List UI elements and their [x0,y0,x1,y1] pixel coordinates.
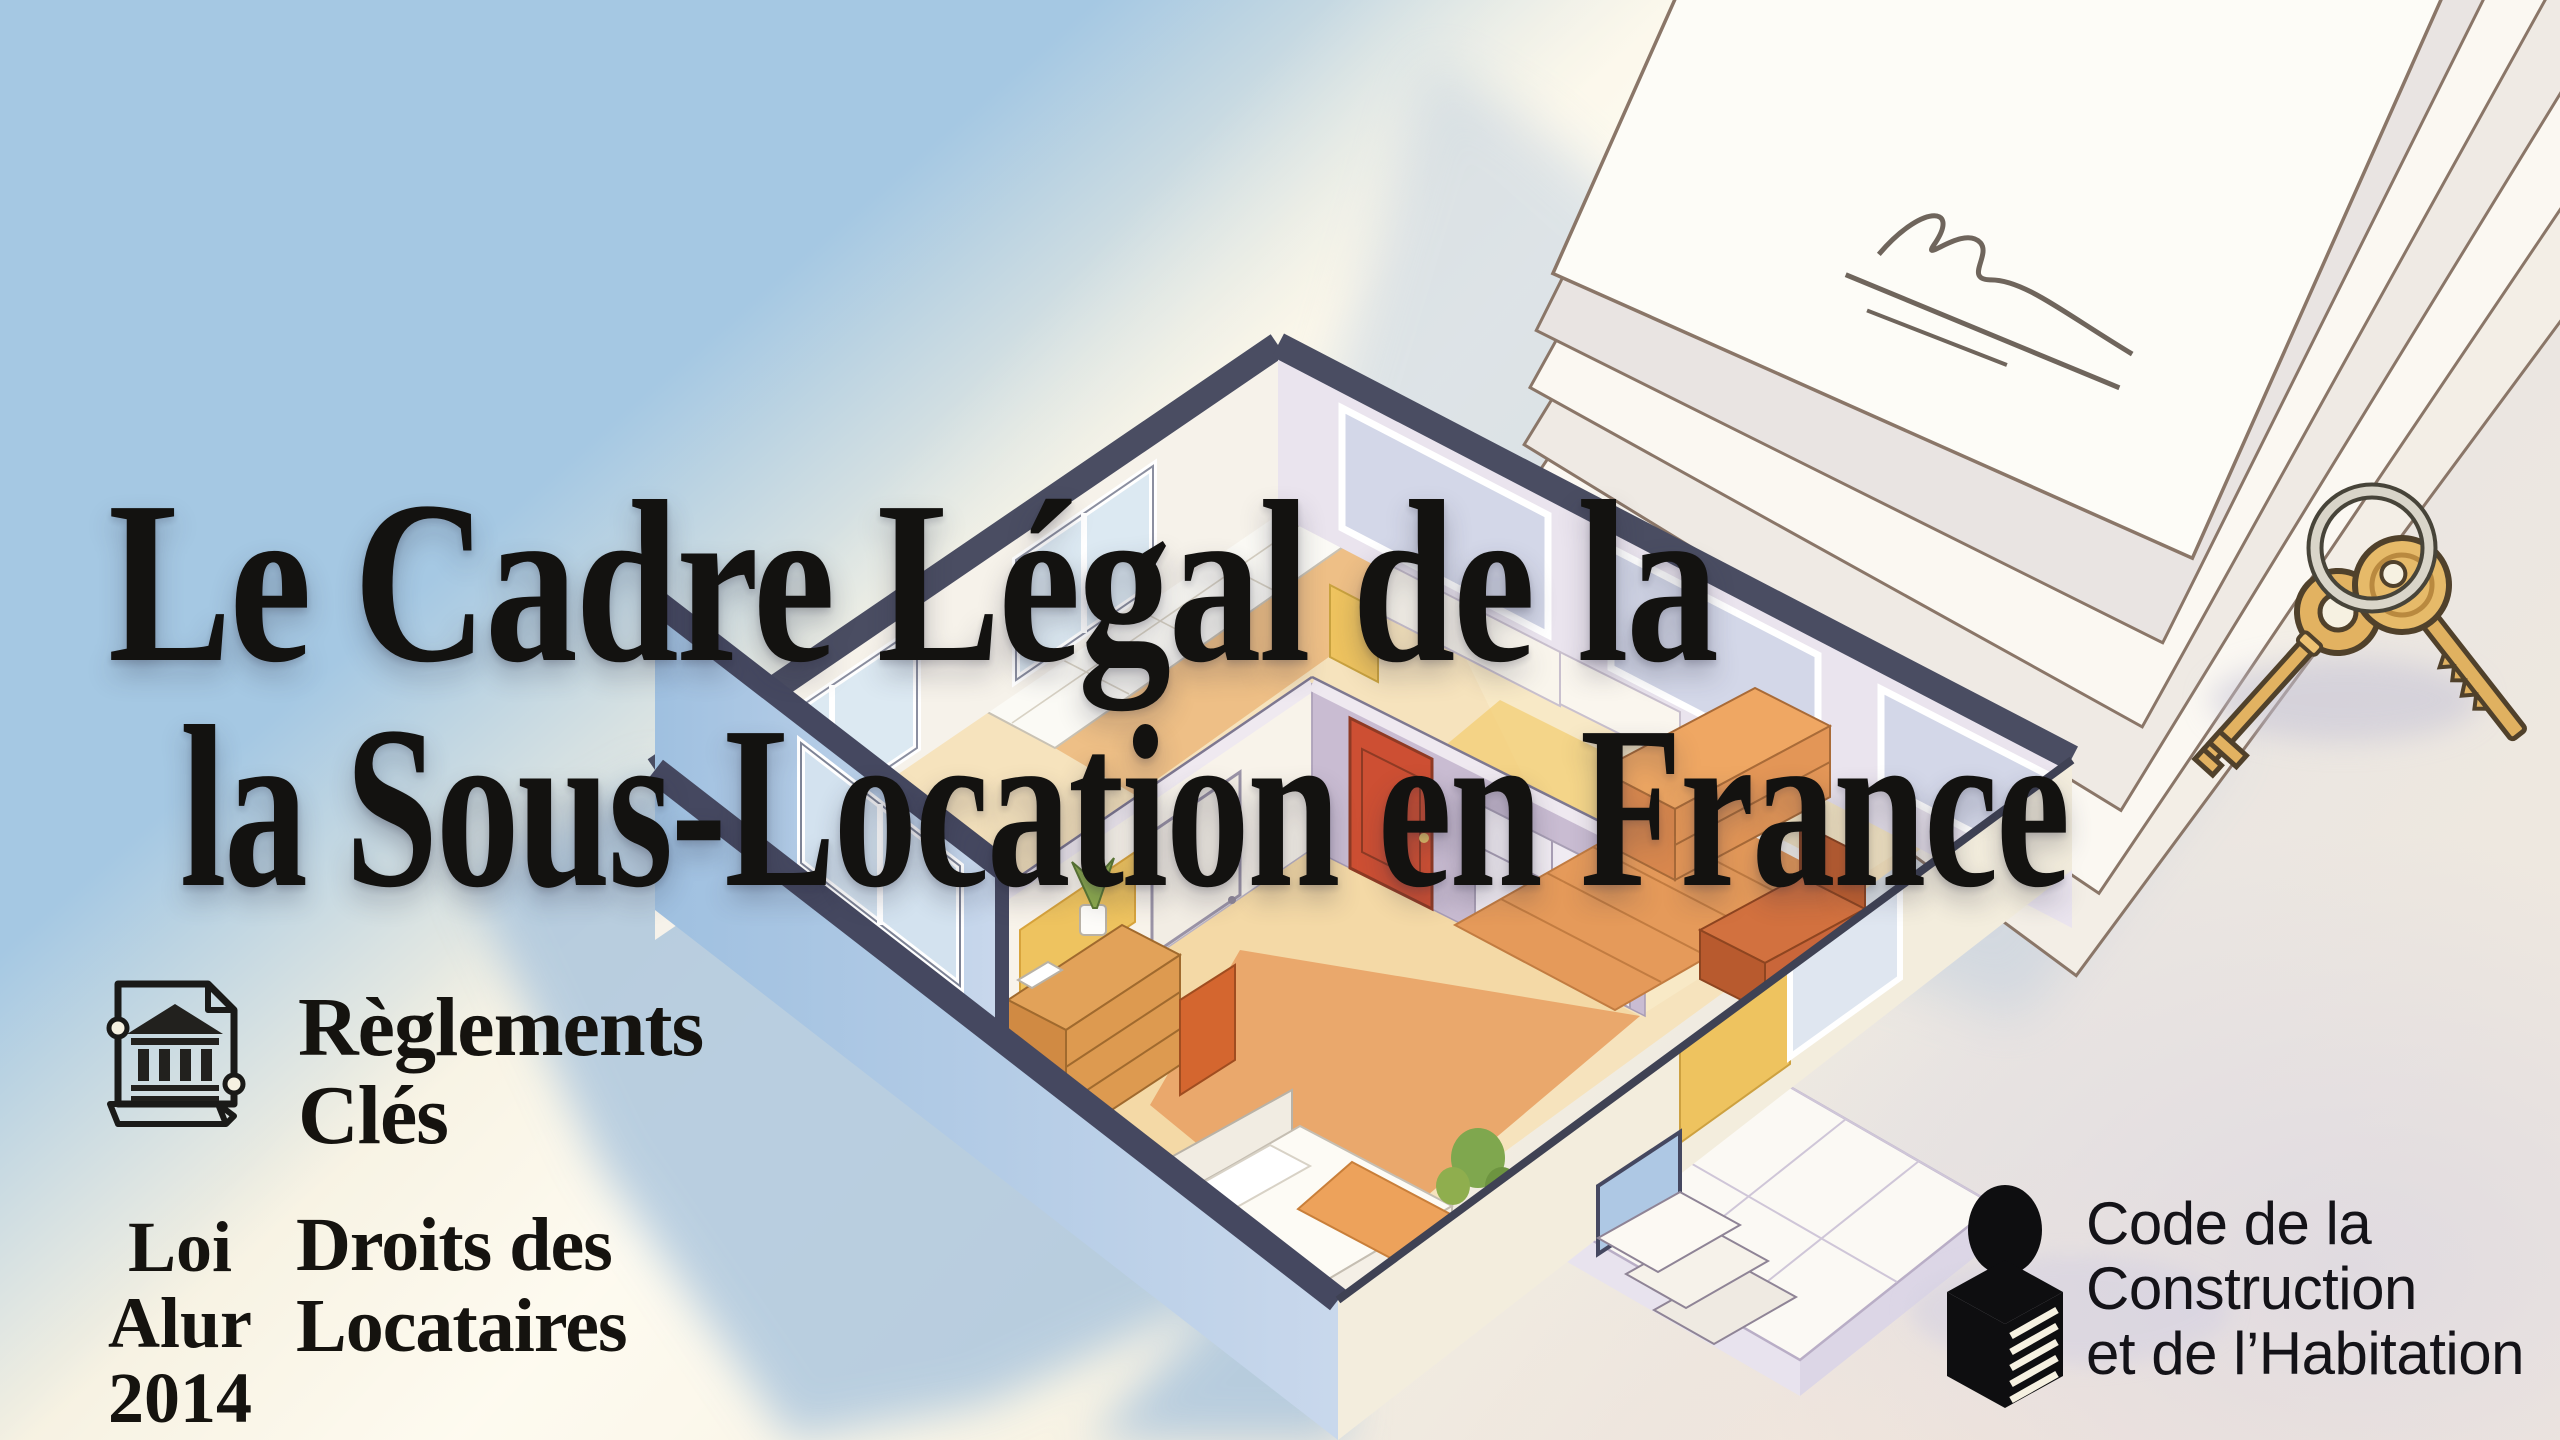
keys-illustration [0,0,2560,1440]
legal-document-bank-icon [100,972,270,1157]
reader-with-documents-icon [1935,1180,2070,1410]
